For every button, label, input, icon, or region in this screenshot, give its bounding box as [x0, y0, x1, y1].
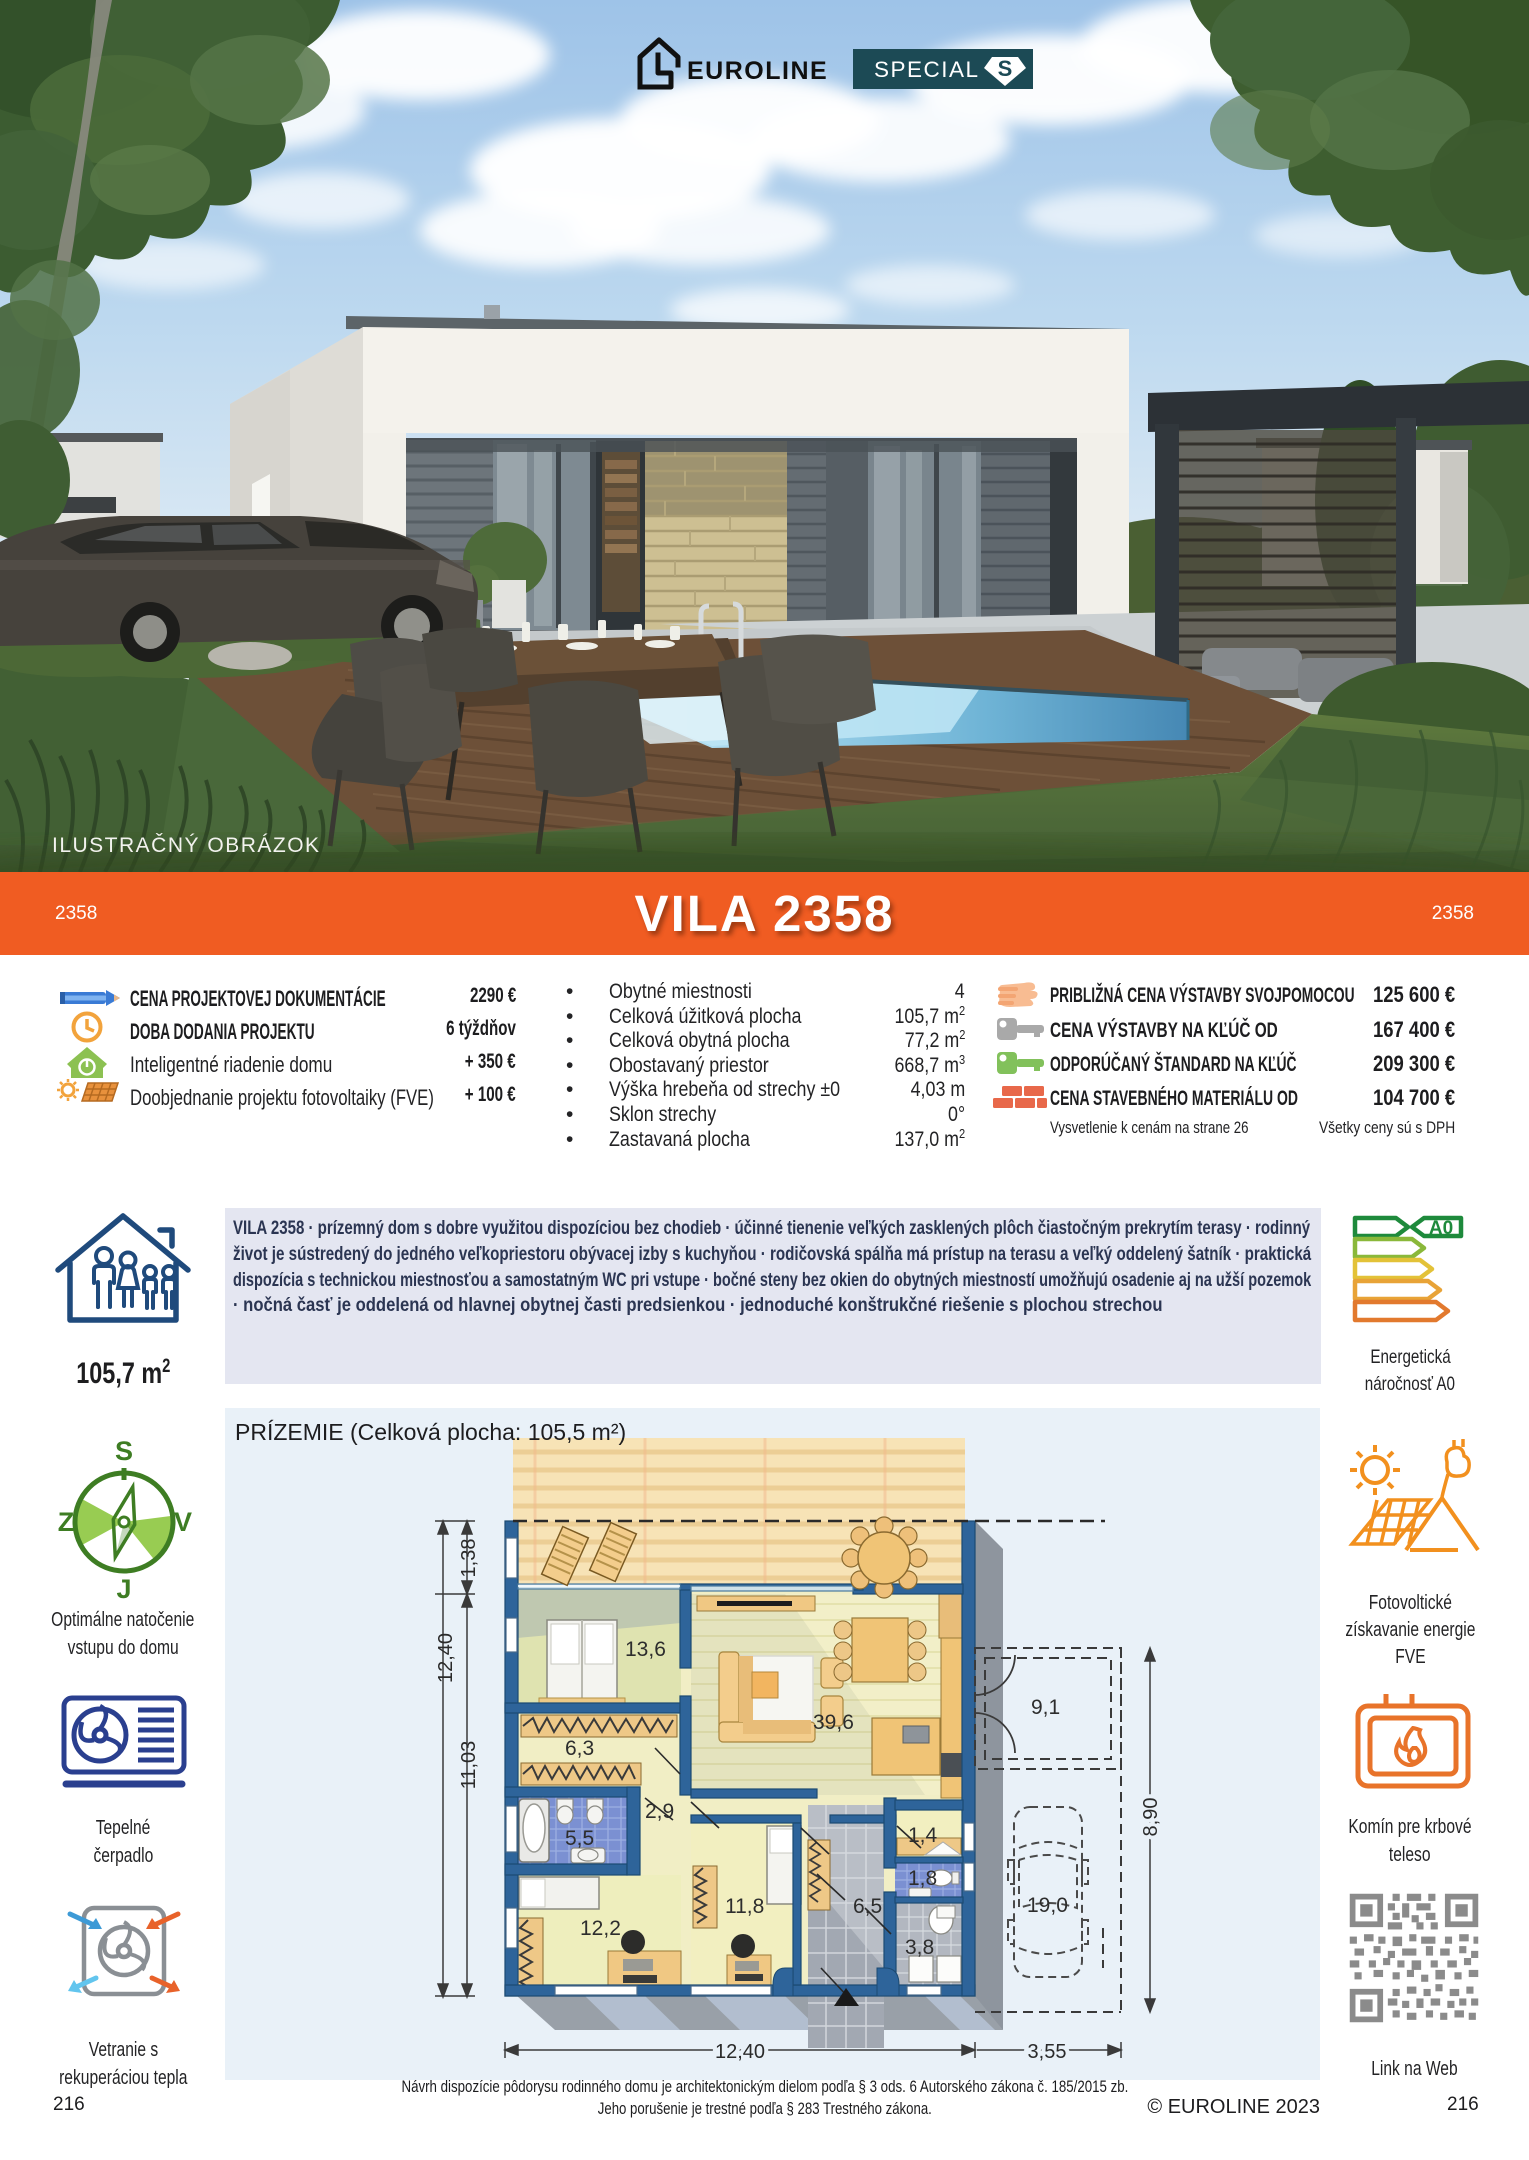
svg-text:9,1: 9,1 [1031, 1696, 1060, 1719]
svg-text:12,2: 12,2 [580, 1917, 621, 1940]
svg-text:PRÍZEMIE (Celková plocha: 105,: PRÍZEMIE (Celková plocha: 105,5 m²) [235, 1419, 626, 1445]
svg-text:5,5: 5,5 [565, 1827, 594, 1850]
svg-text:ILUSTRAČNÝ OBRÁZOK: ILUSTRAČNÝ OBRÁZOK [52, 834, 321, 857]
svg-text:6,3: 6,3 [565, 1737, 594, 1760]
svg-text:6,5: 6,5 [853, 1895, 882, 1918]
svg-text:11,03: 11,03 [458, 1741, 480, 1790]
svg-text:S: S [115, 1440, 133, 1466]
svg-text:1,38: 1,38 [458, 1539, 480, 1578]
svg-text:1,4: 1,4 [908, 1824, 938, 1847]
svg-text:39,6: 39,6 [813, 1711, 854, 1734]
svg-text:11,8: 11,8 [725, 1895, 764, 1918]
svg-text:SPECIAL: SPECIAL [874, 57, 980, 82]
svg-text:3,55: 3,55 [1028, 2041, 1067, 2063]
svg-text:A0: A0 [1429, 1218, 1453, 1239]
svg-text:J: J [116, 1574, 131, 1600]
svg-text:12,40: 12,40 [715, 2041, 765, 2063]
svg-text:S: S [998, 56, 1013, 81]
svg-text:EUROLINE: EUROLINE [687, 57, 828, 85]
svg-text:8,90: 8,90 [1140, 1798, 1162, 1837]
svg-text:13,6: 13,6 [625, 1638, 666, 1661]
svg-text:3,8: 3,8 [905, 1936, 934, 1959]
svg-text:1,8: 1,8 [908, 1867, 937, 1890]
svg-text:Z: Z [58, 1507, 75, 1537]
svg-text:12,40: 12,40 [435, 1633, 457, 1683]
svg-text:V: V [174, 1507, 192, 1537]
svg-text:19,0: 19,0 [1027, 1894, 1068, 1917]
svg-text:2,9: 2,9 [645, 1800, 674, 1823]
